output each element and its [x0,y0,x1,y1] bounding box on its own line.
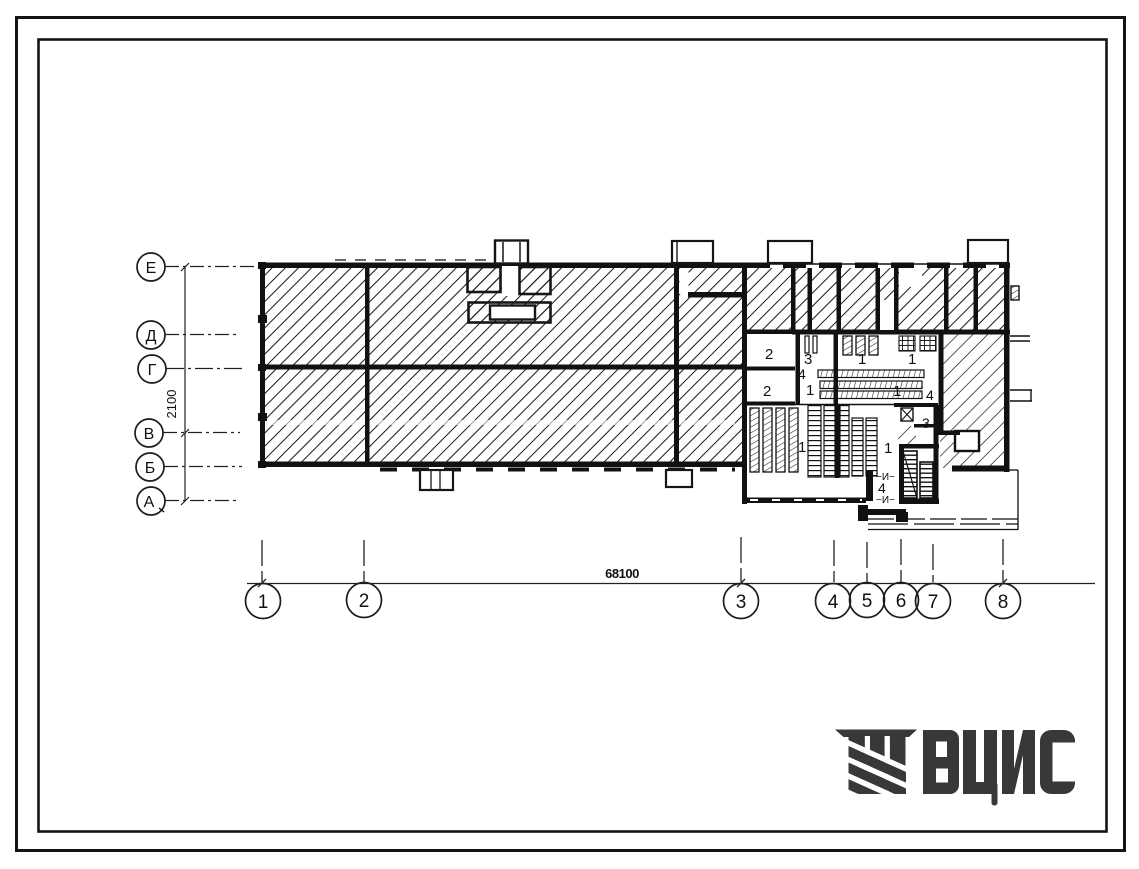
svg-text:В: В [144,426,155,443]
svg-text:1: 1 [798,439,806,456]
svg-text:3: 3 [804,351,812,368]
svg-text:8: 8 [998,592,1009,613]
svg-text:1: 1 [806,382,814,399]
svg-text:68100: 68100 [605,566,639,581]
svg-text:1: 1 [893,383,901,400]
svg-text:3: 3 [736,592,747,613]
svg-text:1: 1 [858,351,866,368]
svg-text:2: 2 [765,346,773,363]
svg-text:1: 1 [258,592,269,613]
svg-text:А: А [144,494,155,511]
svg-text:Г: Г [148,362,157,379]
svg-text:Б: Б [145,460,156,477]
svg-text:Д: Д [146,328,157,345]
svg-text:4: 4 [798,366,806,382]
svg-text:7: 7 [928,592,939,613]
svg-text:2: 2 [763,383,771,400]
svg-text:3: 3 [922,415,930,431]
svg-text:1: 1 [908,351,916,368]
svg-text:4: 4 [828,592,839,613]
svg-text:2100: 2100 [164,390,179,419]
svg-text:5: 5 [862,591,873,612]
svg-text:4: 4 [926,387,934,403]
svg-text:2: 2 [359,591,370,612]
svg-text:Е: Е [146,260,157,277]
svg-text:−И−: −И− [876,472,895,483]
svg-text:6: 6 [896,591,907,612]
svg-text:−И−: −И− [876,495,895,506]
svg-text:1: 1 [884,440,892,457]
